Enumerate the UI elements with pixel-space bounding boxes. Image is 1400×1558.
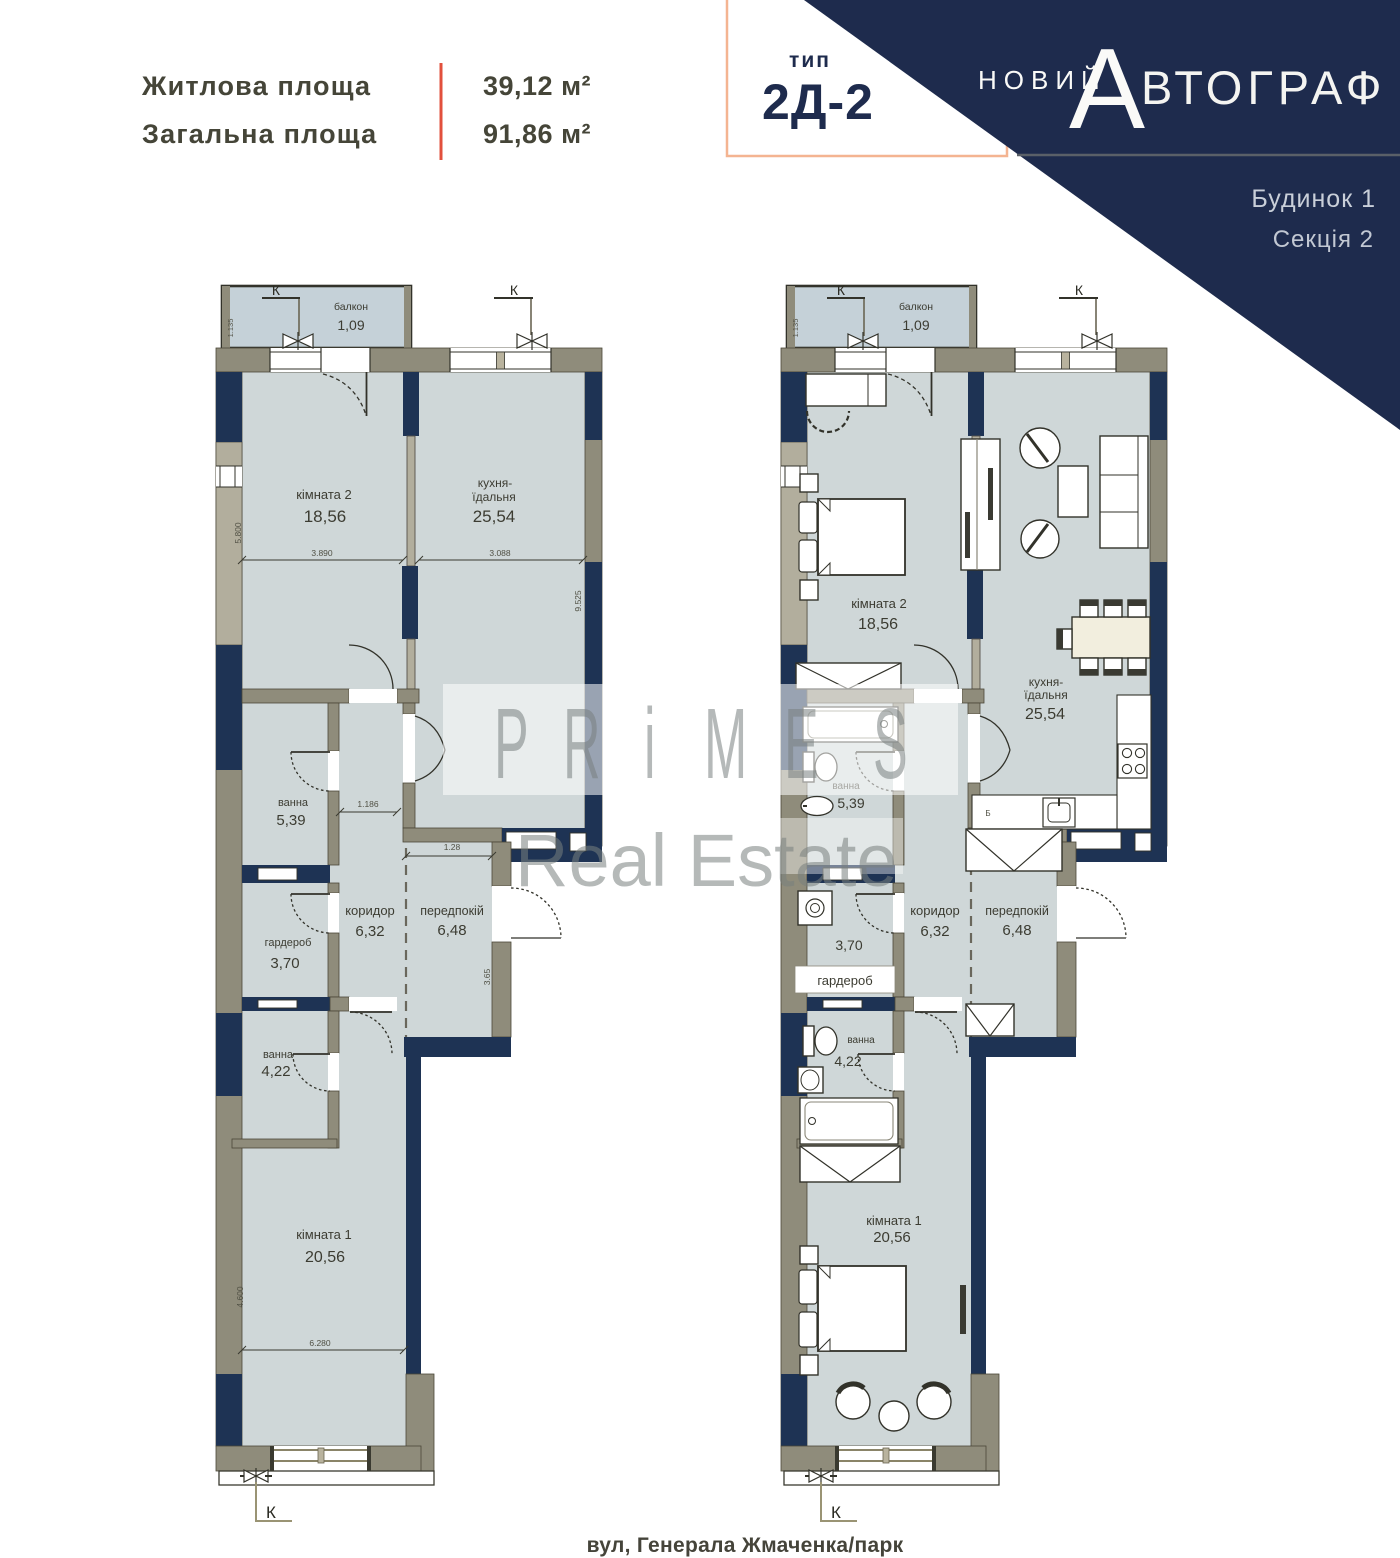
- svg-text:18,56: 18,56: [304, 507, 347, 526]
- svg-text:3.890: 3.890: [311, 548, 333, 558]
- svg-text:5,39: 5,39: [837, 795, 864, 811]
- svg-text:i: i: [644, 688, 656, 800]
- svg-text:Житлова площа: Житлова площа: [141, 71, 371, 101]
- svg-text:ванна: ванна: [263, 1049, 294, 1061]
- svg-text:кімната 2: кімната 2: [296, 487, 352, 502]
- svg-text:M: M: [704, 688, 747, 800]
- svg-text:кухня-: кухня-: [478, 476, 513, 490]
- svg-text:їдальня: їдальня: [1023, 688, 1067, 702]
- svg-text:3.65: 3.65: [482, 968, 492, 985]
- svg-text:гардероб: гардероб: [817, 973, 872, 988]
- svg-text:3.088: 3.088: [489, 548, 511, 558]
- svg-text:ванна: ванна: [278, 797, 309, 809]
- svg-text:тип: тип: [789, 49, 831, 72]
- svg-text:9.525: 9.525: [573, 590, 583, 612]
- svg-text:ВТОГРАФ: ВТОГРАФ: [1141, 61, 1387, 114]
- svg-text:R: R: [563, 688, 601, 800]
- svg-text:кімната 2: кімната 2: [851, 596, 907, 611]
- svg-text:5,39: 5,39: [276, 812, 305, 829]
- svg-text:ванна: ванна: [847, 1035, 875, 1046]
- svg-text:гардероб: гардероб: [265, 937, 312, 949]
- svg-text:20,56: 20,56: [873, 1229, 911, 1246]
- svg-text:39,12 м²: 39,12 м²: [483, 71, 591, 101]
- svg-text:4,22: 4,22: [261, 1063, 290, 1080]
- svg-text:кімната 1: кімната 1: [866, 1213, 922, 1228]
- svg-text:25,54: 25,54: [473, 507, 516, 526]
- svg-text:кухня-: кухня-: [1029, 675, 1064, 689]
- svg-text:E: E: [784, 688, 819, 800]
- svg-text:18,56: 18,56: [858, 616, 898, 633]
- svg-text:4.600: 4.600: [235, 1286, 245, 1308]
- svg-text:5.800: 5.800: [233, 522, 243, 544]
- svg-text:6.280: 6.280: [309, 1338, 331, 1348]
- svg-text:вул, Генерала Жмаченка/парк: вул, Генерала Жмаченка/парк: [587, 1534, 904, 1557]
- svg-text:1.28: 1.28: [444, 842, 461, 852]
- svg-text:кімната 1: кімната 1: [296, 1227, 352, 1242]
- svg-text:1.186: 1.186: [357, 799, 379, 809]
- svg-text:91,86 м²: 91,86 м²: [483, 119, 591, 149]
- svg-text:Загальна площа: Загальна площа: [142, 119, 377, 149]
- svg-text:Б: Б: [985, 809, 990, 818]
- svg-text:S: S: [873, 688, 908, 800]
- svg-text:Real Estate: Real Estate: [515, 819, 898, 902]
- svg-text:А: А: [1069, 26, 1145, 153]
- svg-text:Будинок 1: Будинок 1: [1251, 185, 1376, 213]
- svg-text:20,56: 20,56: [305, 1249, 345, 1266]
- svg-text:4,22: 4,22: [834, 1053, 861, 1069]
- svg-text:Секція 2: Секція 2: [1273, 226, 1374, 253]
- svg-text:2Д-2: 2Д-2: [762, 74, 874, 130]
- svg-text:їдальня: їдальня: [471, 490, 515, 504]
- svg-text:P: P: [494, 688, 529, 800]
- svg-text:3,70: 3,70: [835, 937, 862, 953]
- svg-text:25,54: 25,54: [1025, 706, 1065, 723]
- svg-text:3,70: 3,70: [270, 955, 299, 972]
